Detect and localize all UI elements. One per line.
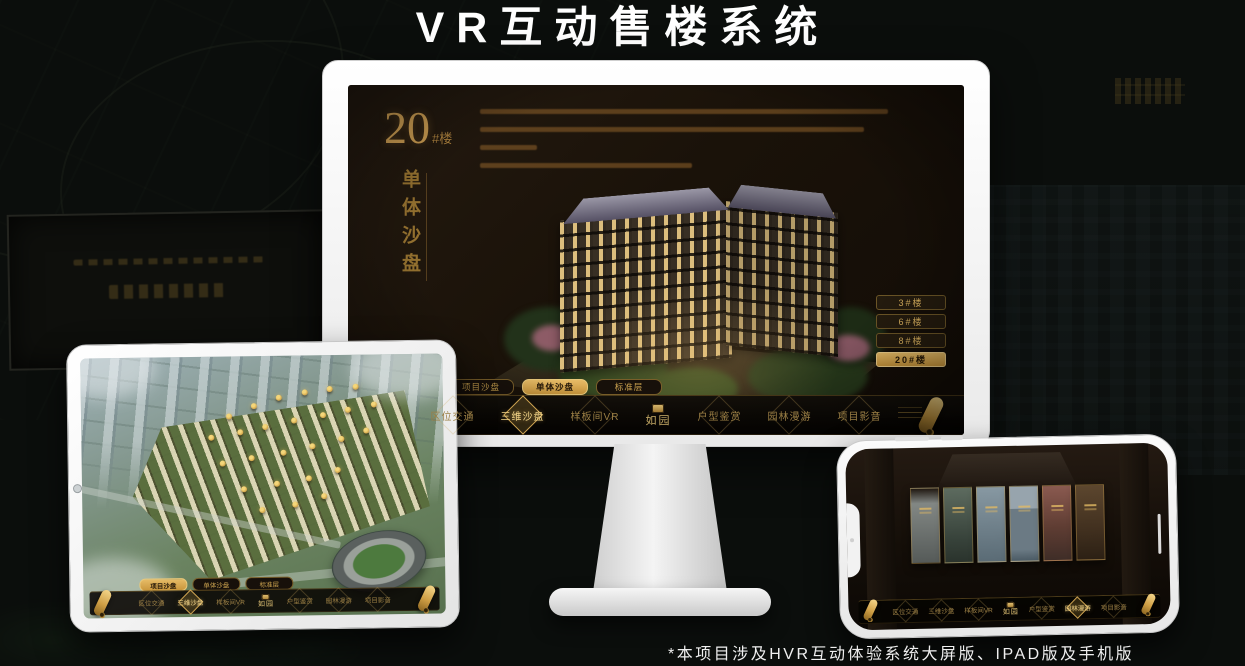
phone-camera-icon <box>850 538 854 542</box>
building-selector: 3#楼 6#楼 8#楼 20#楼 <box>876 295 946 367</box>
subtab-project-sandbox[interactable]: 项目沙盘 <box>448 379 514 395</box>
section-vertical-label: 单体沙盘 <box>396 169 423 281</box>
building-button-3[interactable]: 3#楼 <box>876 295 946 310</box>
nav-item-3d-sandbox[interactable]: 三维沙盘 <box>928 605 954 616</box>
background-city-photo <box>980 185 1245 475</box>
brand-logo-text: 如园 <box>645 416 671 427</box>
gallery-panel[interactable] <box>910 487 941 564</box>
building-button-20[interactable]: 20#楼 <box>876 352 946 367</box>
gallery-panel[interactable] <box>1042 485 1073 562</box>
gallery-panel[interactable] <box>943 487 974 564</box>
brand-logo: 如园 <box>1003 602 1019 616</box>
page-title: VR互动售楼系统 <box>0 0 1245 56</box>
brand-logo: 如园 <box>645 404 671 427</box>
brand-logo: 如园 <box>258 594 274 608</box>
scroll-icon[interactable] <box>866 599 874 621</box>
nav-item-traffic[interactable]: 区位交通 <box>431 408 475 423</box>
scroll-icon[interactable] <box>1144 593 1152 615</box>
scroll-icon[interactable] <box>421 585 431 612</box>
nav-item-showroom-vr[interactable]: 样板间VR <box>216 596 245 606</box>
footnote: *本项目涉及HVR互动体验系统大屏版、IPAD版及手机版 <box>668 640 1134 664</box>
building-number-suffix: #楼 <box>432 131 452 146</box>
scroll-icon[interactable] <box>97 589 107 616</box>
nav-item-3d-sandbox[interactable]: 三维沙盘 <box>177 597 203 607</box>
building-heading: 20#楼 <box>384 105 452 151</box>
monitor-subtabs: 项目沙盘 单体沙盘 标准层 <box>448 379 662 395</box>
nav-item-project-media[interactable]: 项目影音 <box>365 594 391 604</box>
phone-volume-button <box>895 437 929 442</box>
nav-item-project-media[interactable]: 项目影音 <box>1101 602 1127 613</box>
monitor-stand-base <box>549 588 771 616</box>
nav-item-traffic[interactable]: 区位交通 <box>892 606 918 617</box>
background-gold-text <box>1115 78 1185 104</box>
phone-notch <box>845 503 861 577</box>
nav-item-3d-sandbox[interactable]: 三维沙盘 <box>501 408 545 423</box>
nav-item-showroom-vr[interactable]: 样板间VR <box>964 604 993 615</box>
nav-item-unit-gallery[interactable]: 户型鉴赏 <box>697 408 741 423</box>
gallery-panel[interactable] <box>1075 484 1106 561</box>
brand-logo-text: 如园 <box>258 601 274 608</box>
scroll-icon[interactable] <box>924 396 938 434</box>
stage: VR互动售楼系统 20#楼 单体沙盘 <box>0 0 1245 666</box>
home-indicator[interactable] <box>1158 513 1162 553</box>
nav-item-unit-gallery[interactable]: 户型鉴赏 <box>1029 603 1055 614</box>
subtab-standard-floor[interactable]: 标准层 <box>596 379 662 395</box>
building-button-8[interactable]: 8#楼 <box>876 333 946 348</box>
nav-item-showroom-vr[interactable]: 样板间VR <box>571 408 620 423</box>
nav-item-traffic[interactable]: 区位交通 <box>138 597 164 607</box>
phone-power-button <box>941 436 963 440</box>
seal-icon <box>262 594 270 600</box>
nav-item-garden-tour[interactable]: 园林漫游 <box>1065 602 1091 613</box>
monitor-stand-neck <box>593 444 727 592</box>
subtab-single-sandbox[interactable]: 单体沙盘 <box>522 379 588 395</box>
seal-icon <box>652 404 664 413</box>
phone-device: 区位交通 三维沙盘 样板间VR 如园 户型鉴赏 园林漫游 项目影音 <box>836 433 1180 639</box>
nav-item-project-media[interactable]: 项目影音 <box>837 408 881 423</box>
gallery-panels <box>910 484 1106 564</box>
phone-nav-bar: 区位交通 三维沙盘 样板间VR 如园 户型鉴赏 园林漫游 项目影音 <box>858 594 1160 624</box>
phone-screen: 区位交通 三维沙盘 样板间VR 如园 户型鉴赏 园林漫游 项目影音 <box>845 443 1171 631</box>
nav-item-unit-gallery[interactable]: 户型鉴赏 <box>287 595 313 605</box>
gallery-panel[interactable] <box>976 486 1007 563</box>
seal-icon <box>1007 602 1015 608</box>
tablet-nav-bar: 区位交通 三维沙盘 样板间VR 如园 户型鉴赏 园林漫游 项目影音 <box>89 587 439 616</box>
building-number: 20 <box>384 102 430 153</box>
heading-divider <box>426 173 427 281</box>
nav-item-garden-tour[interactable]: 园林漫游 <box>326 595 352 605</box>
nav-item-garden-tour[interactable]: 园林漫游 <box>767 408 811 423</box>
tablet-screen: 项目沙盘 单体沙盘 标准层 区位交通 三维沙盘 样板间VR 如园 户型鉴赏 园林… <box>80 353 446 618</box>
gallery-panel[interactable] <box>1009 485 1040 562</box>
tablet-camera-icon <box>73 484 82 493</box>
tablet-device: 项目沙盘 单体沙盘 标准层 区位交通 三维沙盘 样板间VR 如园 户型鉴赏 园林… <box>66 339 460 632</box>
building-render[interactable] <box>498 157 858 407</box>
brand-logo-text: 如园 <box>1003 609 1019 616</box>
building-button-6[interactable]: 6#楼 <box>876 314 946 329</box>
